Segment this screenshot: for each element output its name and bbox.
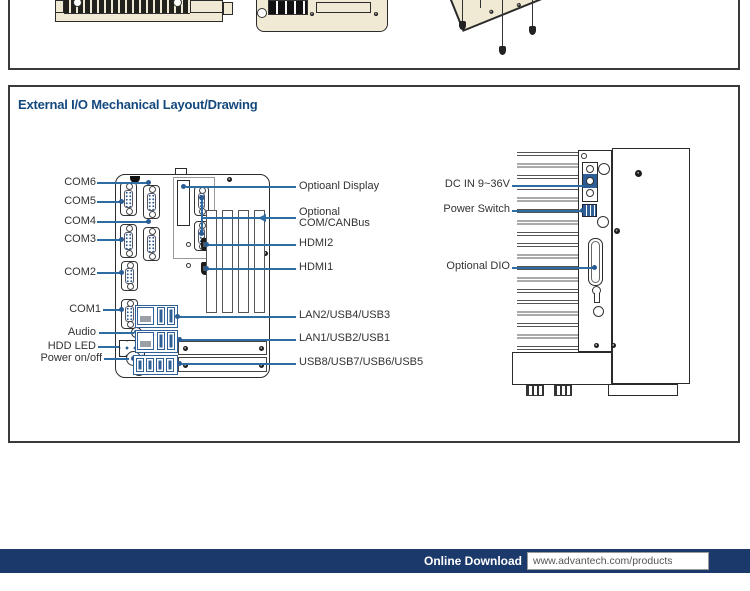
label-optional-com-canbus: Optional COM/CANBus	[299, 207, 391, 229]
lan2-port	[137, 307, 154, 325]
dc-terminal	[586, 189, 594, 197]
label-com3: COM3	[21, 234, 96, 245]
screw-shaft	[502, 0, 503, 47]
bottom-base	[512, 352, 612, 385]
screw	[227, 177, 232, 182]
label-com4: COM4	[21, 216, 96, 227]
base-connector-tab	[554, 385, 572, 396]
usb8-port	[136, 358, 144, 372]
label-dc-in: DC IN 9~36V	[430, 179, 510, 190]
screw-head	[529, 26, 536, 35]
label-hdd-led: HDD LED	[21, 341, 96, 352]
com4-connector	[143, 227, 160, 261]
slot-cover	[178, 341, 267, 355]
round-opening	[598, 163, 610, 175]
label-com2: COM2	[21, 267, 96, 278]
screw	[183, 346, 188, 351]
round-opening	[597, 216, 609, 228]
screw	[611, 343, 616, 348]
lan1-port	[137, 332, 154, 350]
screw	[614, 228, 620, 234]
plate-hole	[516, 2, 521, 7]
screw	[374, 12, 378, 16]
label-lan2-usb4-usb3: LAN2/USB4/USB3	[299, 310, 390, 321]
round-connector	[257, 8, 267, 18]
device-end-block-right	[190, 0, 223, 13]
label-lan1-usb2-usb1: LAN1/USB2/USB1	[299, 333, 390, 344]
device-end-block-left	[55, 0, 64, 13]
usb1-port	[167, 332, 175, 350]
section-title: External I/O Mechanical Layout/Drawing	[18, 97, 257, 112]
side-wall-panel	[612, 148, 690, 384]
label-com6: COM6	[21, 177, 96, 188]
label-hdmi2: HDMI2	[299, 238, 333, 249]
usb3-port	[167, 307, 175, 325]
small-hole	[186, 242, 191, 247]
usb6-port	[156, 358, 164, 372]
label-power-switch: Power Switch	[430, 204, 510, 215]
heatsink-fins	[517, 152, 578, 352]
screw	[635, 170, 642, 177]
label-com1: COM1	[26, 304, 101, 315]
label-audio: Audio	[21, 327, 96, 338]
small-hole	[186, 263, 191, 268]
expansion-slot-bar	[254, 210, 265, 313]
screw	[594, 343, 599, 348]
screw-shaft	[532, 0, 533, 27]
port-block	[268, 0, 308, 15]
online-download-label: Online Download	[384, 554, 522, 568]
top-notch	[175, 168, 187, 175]
label-power-on-off: Power on/off	[27, 353, 102, 364]
bottom-flange	[608, 384, 678, 396]
optional-dio-connector	[588, 238, 603, 286]
heatsink-fins	[64, 0, 190, 14]
usb5-port	[166, 358, 174, 372]
device-side-tab	[223, 2, 233, 15]
slot-cover	[178, 357, 267, 372]
base-connector-tab	[526, 385, 544, 396]
expansion-slot-bar	[206, 210, 217, 313]
screw-shaft	[462, 0, 463, 22]
label-optional-dio: Optional DIO	[430, 261, 510, 272]
com2-connector	[121, 261, 138, 291]
screw-shaft	[480, 0, 481, 8]
label-hdmi1: HDMI1	[299, 262, 333, 273]
screw-head	[459, 21, 466, 30]
expansion-slot-bar	[222, 210, 233, 313]
label-com5: COM5	[21, 196, 96, 207]
screw	[259, 346, 264, 351]
screw-head	[499, 46, 506, 55]
usb7-port	[146, 358, 154, 372]
datasheet-page: External I/O Mechanical Layout/Drawing	[0, 0, 750, 591]
usb4-port	[157, 307, 165, 325]
dc-terminal	[586, 165, 594, 173]
label-optional-display: Optioanl Display	[299, 181, 379, 192]
download-url: www.advantech.com/products	[528, 553, 708, 569]
download-url-box: www.advantech.com/products	[527, 552, 709, 570]
plate-hole	[489, 9, 494, 14]
recessed-slot	[316, 2, 371, 13]
usb2-port	[157, 332, 165, 350]
round-opening	[593, 306, 604, 317]
keyhole-stem	[594, 293, 600, 303]
com6-connector	[143, 185, 160, 219]
label-usb8-usb7-usb6-usb5: USB8/USB7/USB6/USB5	[299, 357, 423, 368]
screw-hole	[581, 153, 587, 159]
expansion-slot-bar	[238, 210, 249, 313]
screw	[310, 12, 314, 16]
